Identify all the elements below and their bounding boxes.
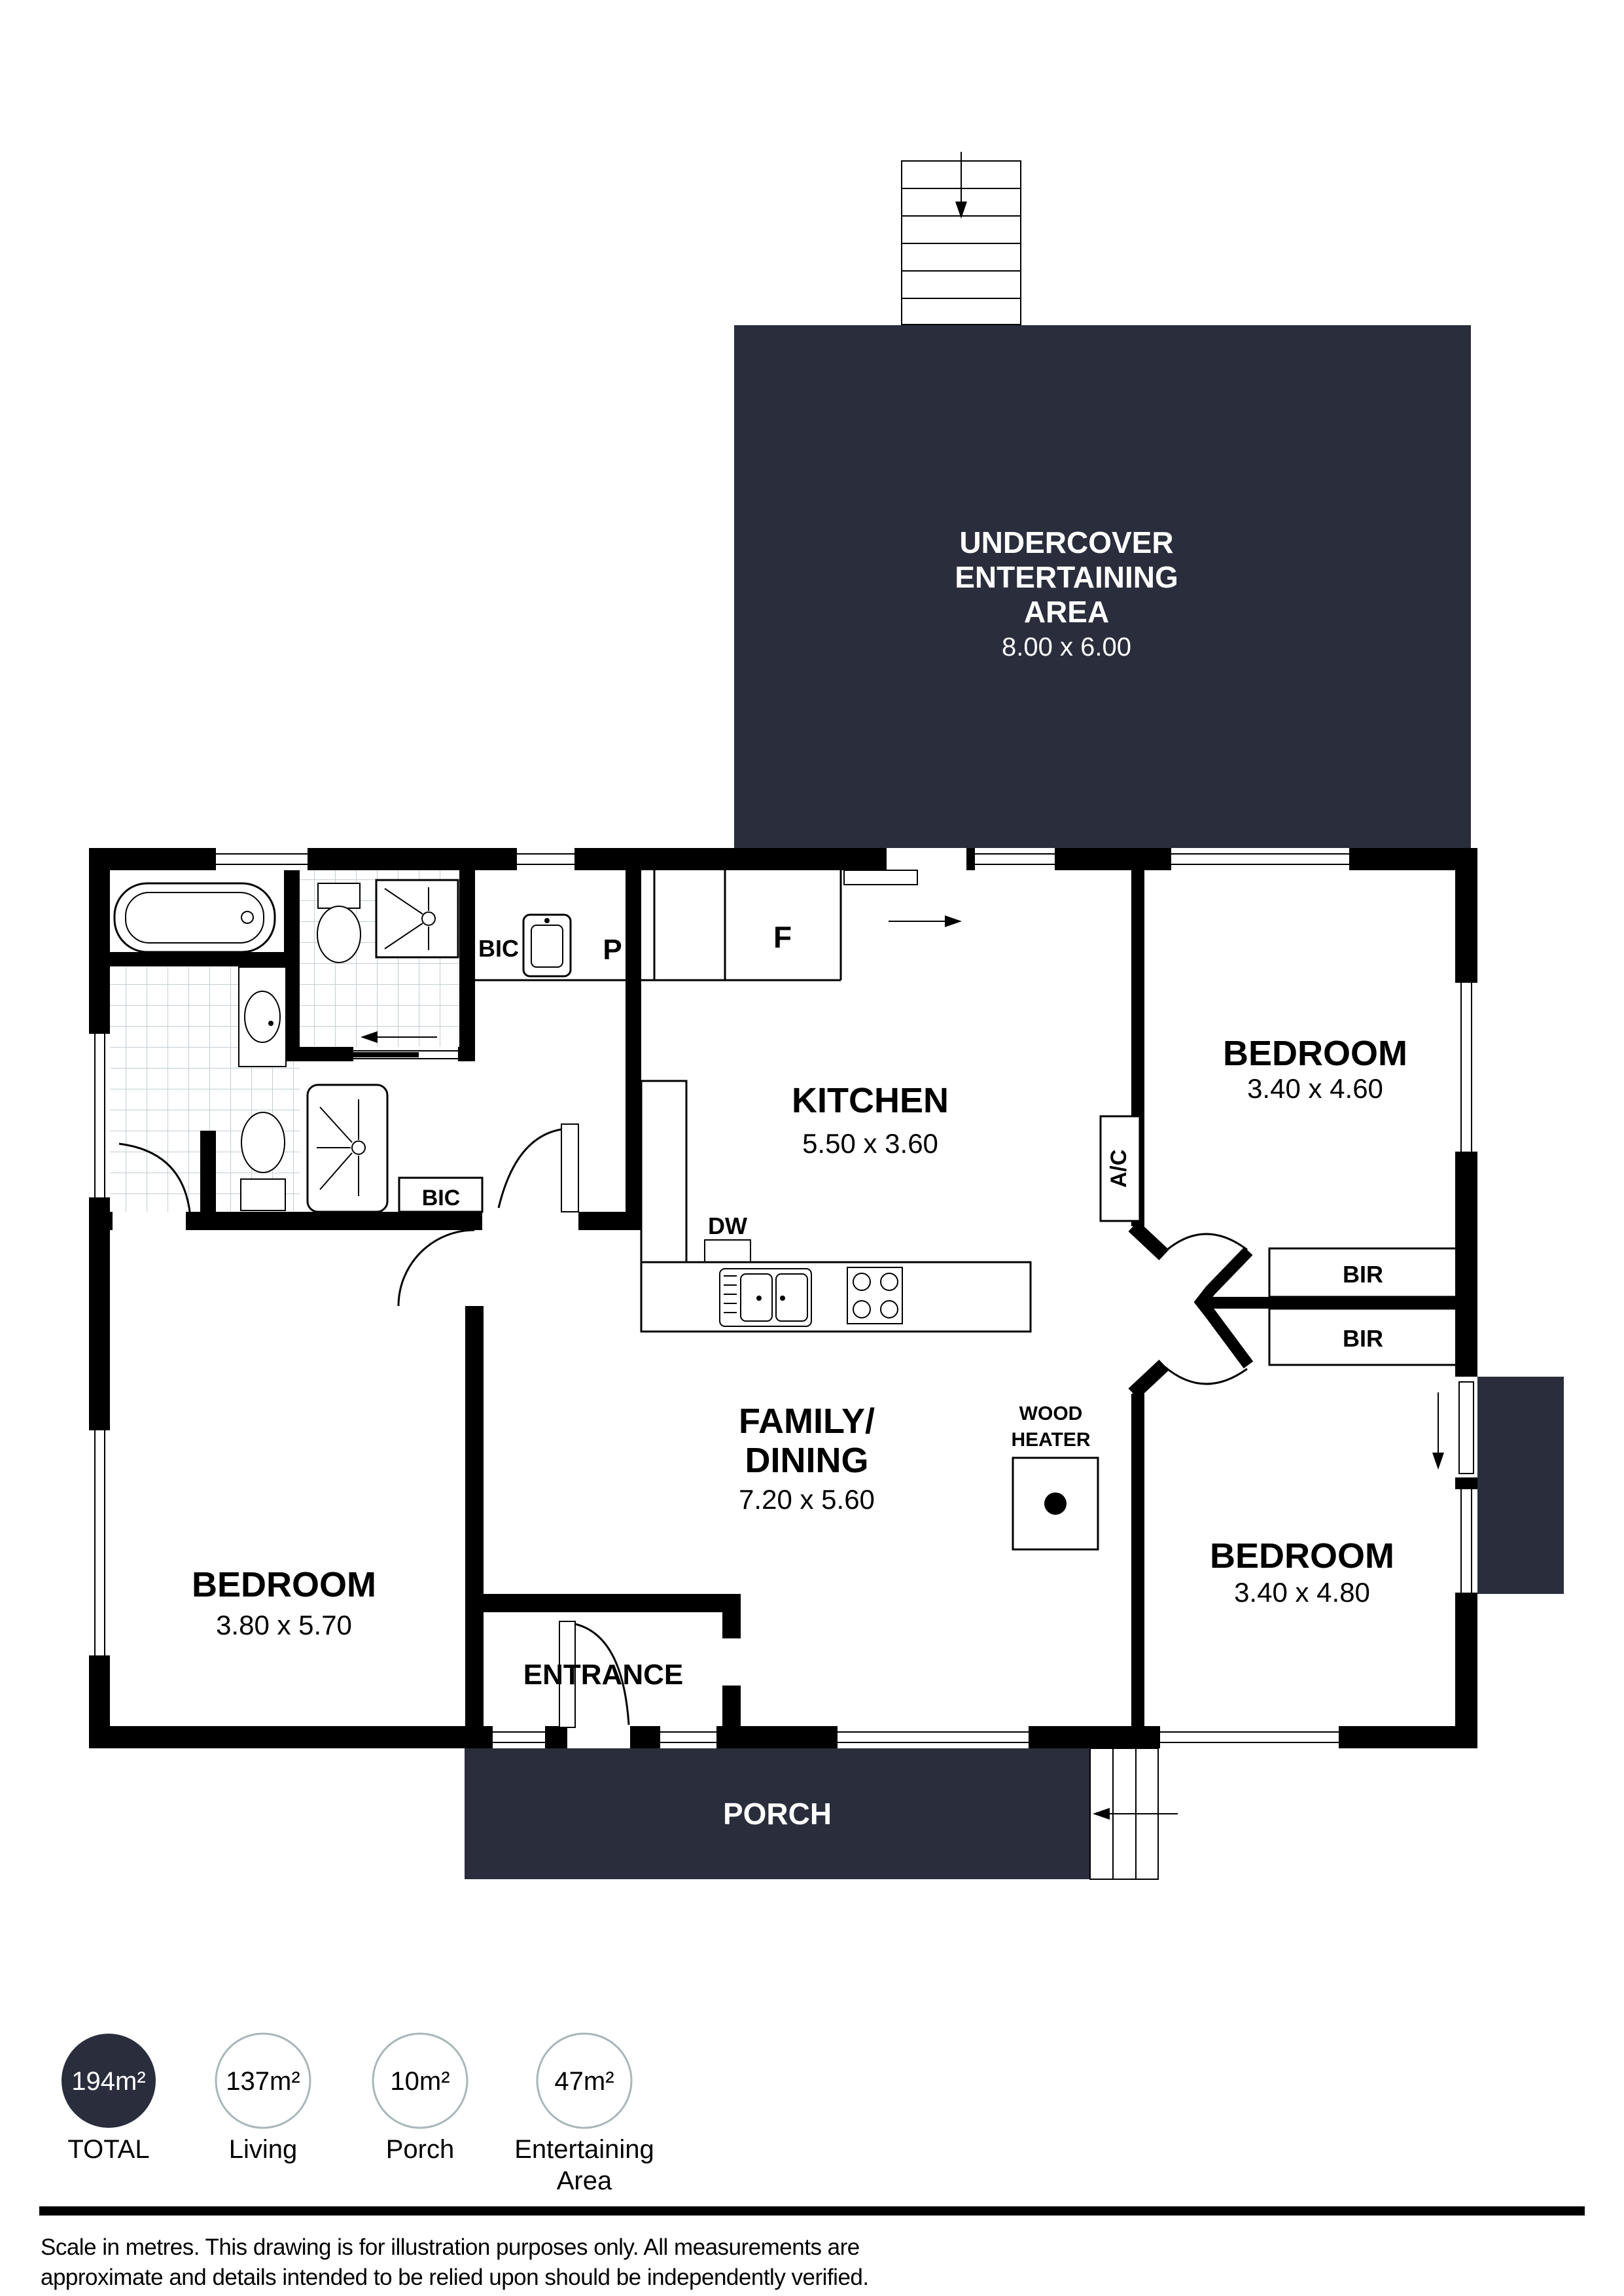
fridge-label: F xyxy=(773,920,792,954)
undercover-line1: UNDERCOVER xyxy=(959,525,1173,559)
floorplan-page: UNDERCOVER ENTERTAINING AREA 8.00 x 6.00… xyxy=(0,0,1624,2296)
sliding-door-arrow-icon xyxy=(889,915,962,927)
window-glyph xyxy=(660,1726,716,1748)
door-arc xyxy=(398,1230,474,1306)
floorplan-drawing: UNDERCOVER ENTERTAINING AREA 8.00 x 6.00… xyxy=(0,0,1624,2296)
bic-top-label: BIC xyxy=(478,935,519,962)
undercover-line3: AREA xyxy=(1024,595,1109,629)
kitchen-label: KITCHEN xyxy=(792,1081,949,1120)
toilet-icon xyxy=(241,1112,285,1210)
legend-total-value: 194m² xyxy=(71,2067,145,2096)
undercover-entertaining-area: UNDERCOVER ENTERTAINING AREA 8.00 x 6.00 xyxy=(734,325,1471,848)
porch-label: PORCH xyxy=(723,1797,832,1831)
dishwasher-label: DW xyxy=(708,1212,747,1239)
pantry-label: P xyxy=(603,934,622,966)
family-label-line1: FAMILY/ xyxy=(739,1402,875,1441)
wood-heater-line1: WOOD xyxy=(1019,1403,1083,1424)
door-to-landing xyxy=(1455,1377,1477,1477)
family-label-line2: DINING xyxy=(745,1441,869,1480)
window-glyph xyxy=(838,1726,1029,1748)
window-glyph xyxy=(1455,983,1477,1152)
hall-cupboard: BIC xyxy=(399,1178,482,1212)
toilet-icon xyxy=(317,883,361,963)
porch: PORCH xyxy=(465,1748,1178,1879)
sliding-door-opening xyxy=(887,848,966,870)
vanity-basin xyxy=(239,967,286,1067)
kitchen-dims: 5.50 x 3.60 xyxy=(802,1128,938,1159)
ac-unit: A/C xyxy=(1101,1116,1140,1221)
bedroom2-label: BEDROOM xyxy=(192,1565,376,1604)
wood-heater: WOOD HEATER xyxy=(1011,1403,1098,1549)
window-glyph xyxy=(493,1726,545,1748)
sink-icon xyxy=(523,915,571,976)
legend-entertaining-label: Entertaining xyxy=(514,2135,654,2164)
bedroom3-dims: 3.40 x 4.80 xyxy=(1234,1577,1370,1608)
dishwasher-box xyxy=(705,1240,750,1262)
legend-entertaining-label2: Area xyxy=(557,2166,612,2195)
door-arc xyxy=(1164,1366,1247,1384)
shower-icon xyxy=(308,1085,387,1212)
shower-icon xyxy=(376,880,458,957)
side-landing-block xyxy=(1477,1377,1564,1594)
bir-top-label: BIR xyxy=(1343,1261,1383,1288)
undercover-line2: ENTERTAINING xyxy=(955,560,1178,594)
landing-down-arrow-icon xyxy=(1432,1392,1444,1470)
window-glyph xyxy=(1160,1726,1339,1748)
cooktop-icon xyxy=(847,1267,902,1324)
legend-porch-value: 10m² xyxy=(390,2067,450,2096)
hall-door xyxy=(499,1124,578,1212)
bic-hall-label: BIC xyxy=(422,1186,461,1210)
front-door-opening xyxy=(567,1726,630,1748)
entrance-label: ENTRANCE xyxy=(523,1659,683,1691)
bedroom1-label: BEDROOM xyxy=(1223,1034,1407,1073)
bir-bottom-label: BIR xyxy=(1343,1325,1383,1352)
window-glyph xyxy=(1171,848,1349,870)
footer-line1: Scale in metres. This drawing is for ill… xyxy=(41,2234,860,2260)
ac-label: A/C xyxy=(1106,1150,1131,1188)
family-dims: 7.20 x 5.60 xyxy=(739,1484,875,1515)
window-glyph xyxy=(975,848,1055,870)
sliding-door-panel xyxy=(844,870,917,885)
kitchen-sink-icon xyxy=(720,1269,811,1326)
legend-living-label: Living xyxy=(229,2135,298,2164)
window-glyph xyxy=(89,1430,110,1655)
window-glyph xyxy=(517,848,574,870)
door-arc xyxy=(1164,1234,1247,1252)
window-glyph xyxy=(216,848,308,870)
window-glyph xyxy=(89,1034,110,1197)
bedroom2-dims: 3.80 x 5.70 xyxy=(216,1610,352,1640)
exterior-stairs xyxy=(902,152,1021,325)
kitchen-top-band: BIC P F xyxy=(475,870,841,980)
legend-total-label: TOTAL xyxy=(67,2135,149,2164)
bedroom3-label: BEDROOM xyxy=(1210,1536,1394,1576)
footer-divider xyxy=(39,2206,1585,2216)
legend-entertaining-value: 47m² xyxy=(554,2067,614,2096)
legend-living-value: 137m² xyxy=(226,2067,300,2096)
undercover-dims: 8.00 x 6.00 xyxy=(1002,633,1131,662)
bedroom1-dims: 3.40 x 4.60 xyxy=(1247,1073,1383,1104)
window-glyph xyxy=(1455,1489,1477,1593)
legend: 194m² TOTAL 137m² Living 10m² Porch 47m²… xyxy=(62,2034,654,2195)
legend-porch-label: Porch xyxy=(386,2135,455,2164)
wood-heater-line2: HEATER xyxy=(1011,1429,1090,1451)
footer-line2: approximate and details intended to be r… xyxy=(41,2265,869,2290)
bathtub xyxy=(115,883,275,952)
